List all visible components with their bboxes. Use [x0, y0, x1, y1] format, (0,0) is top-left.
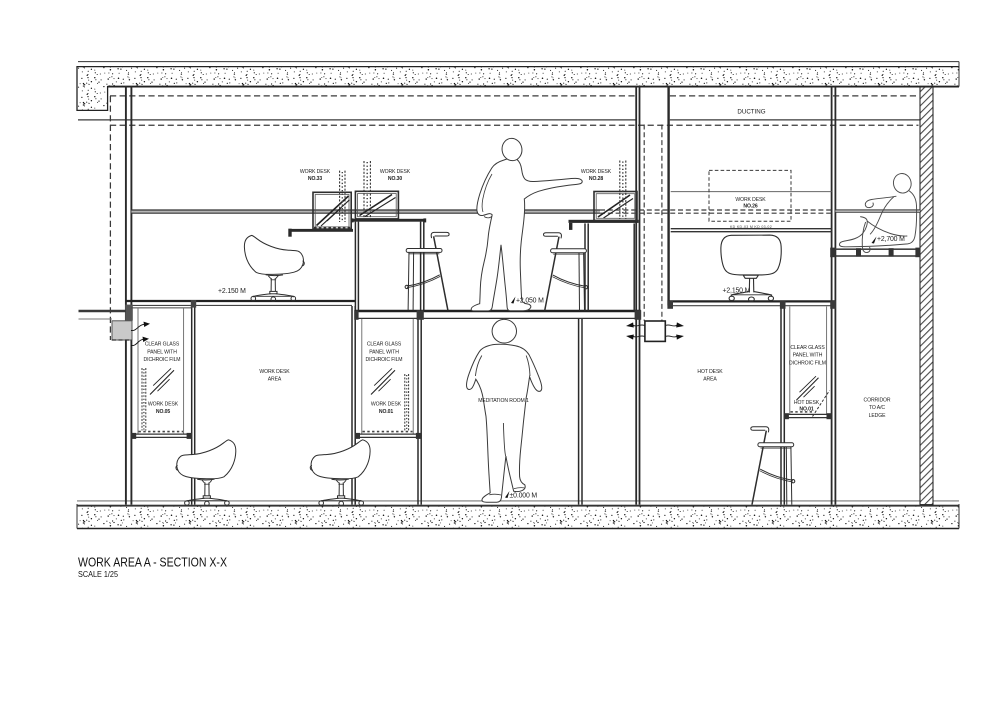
svg-text:HOT DESK: HOT DESK — [794, 400, 820, 406]
svg-text:CLEAR GLASS: CLEAR GLASS — [790, 345, 825, 351]
svg-text:+2,700 M: +2,700 M — [877, 236, 905, 243]
svg-text:WORK DESK: WORK DESK — [371, 401, 402, 407]
svg-text:NO.01: NO.01 — [379, 409, 393, 415]
svg-text:WORK DESK: WORK DESK — [735, 197, 766, 203]
svg-text:WORK DESK: WORK DESK — [259, 369, 290, 375]
svg-text:WORK DESK: WORK DESK — [300, 169, 331, 175]
svg-text:PANEL WITH: PANEL WITH — [793, 353, 823, 359]
svg-text:PANEL WITH: PANEL WITH — [147, 349, 177, 355]
svg-text:TO A/C: TO A/C — [869, 405, 885, 411]
svg-text:CORRIDOR: CORRIDOR — [864, 398, 891, 404]
svg-text:NO.30: NO.30 — [388, 176, 402, 182]
svg-text:DUCTING: DUCTING — [737, 109, 765, 116]
svg-text:KD KD-03 M KD 03-02: KD KD-03 M KD 03-02 — [730, 225, 772, 229]
svg-text:DICHROIC FILM: DICHROIC FILM — [789, 360, 826, 366]
svg-text:+2,050 M: +2,050 M — [516, 298, 544, 305]
svg-text:SCALE 1/25: SCALE 1/25 — [78, 570, 118, 579]
svg-text:DICHROIC FILM: DICHROIC FILM — [366, 357, 403, 363]
svg-text:DICHROIC FILM: DICHROIC FILM — [144, 357, 181, 363]
svg-text:WORK DESK: WORK DESK — [581, 169, 612, 175]
svg-text:AREA: AREA — [268, 377, 282, 383]
svg-text:±0.000 M: ±0.000 M — [510, 493, 538, 500]
svg-text:AREA: AREA — [703, 377, 717, 383]
svg-text:CLEAR GLASS: CLEAR GLASS — [367, 342, 402, 348]
svg-text:WORK DESK: WORK DESK — [380, 169, 411, 175]
svg-text:WORK AREA A - SECTION X-X: WORK AREA A - SECTION X-X — [78, 555, 227, 570]
svg-text:NO.28: NO.28 — [589, 176, 603, 182]
svg-text:NO.26: NO.26 — [743, 204, 757, 210]
svg-text:PANEL WITH: PANEL WITH — [369, 349, 399, 355]
svg-text:HOT DESK: HOT DESK — [697, 369, 723, 375]
svg-text:WORK DESK: WORK DESK — [148, 401, 179, 407]
svg-text:MEDITATION ROOM 1: MEDITATION ROOM 1 — [478, 398, 529, 404]
svg-text:CLEAR GLASS: CLEAR GLASS — [145, 342, 180, 348]
svg-text:+2.150 M: +2.150 M — [218, 288, 246, 295]
svg-text:NO.33: NO.33 — [308, 176, 322, 182]
svg-text:NO.01: NO.01 — [799, 407, 813, 413]
svg-text:LEDGE: LEDGE — [869, 413, 886, 419]
svg-text:NO.05: NO.05 — [156, 409, 170, 415]
